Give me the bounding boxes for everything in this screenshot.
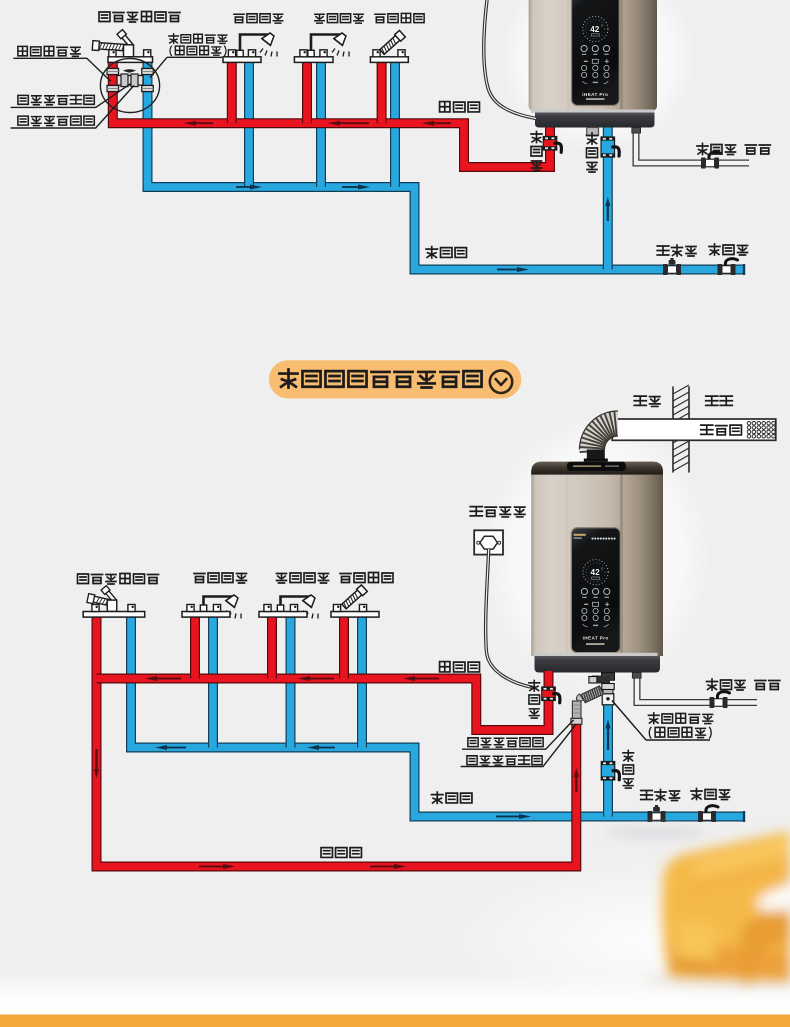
svg-text:iHEAT Pro: iHEAT Pro [582,92,608,97]
svg-text:42: 42 [591,568,601,577]
svg-text:c: c [601,24,603,28]
svg-text:42: 42 [590,25,600,34]
svg-text:iHEAT Pro: iHEAT Pro [583,636,609,641]
svg-text:c: c [601,567,603,571]
